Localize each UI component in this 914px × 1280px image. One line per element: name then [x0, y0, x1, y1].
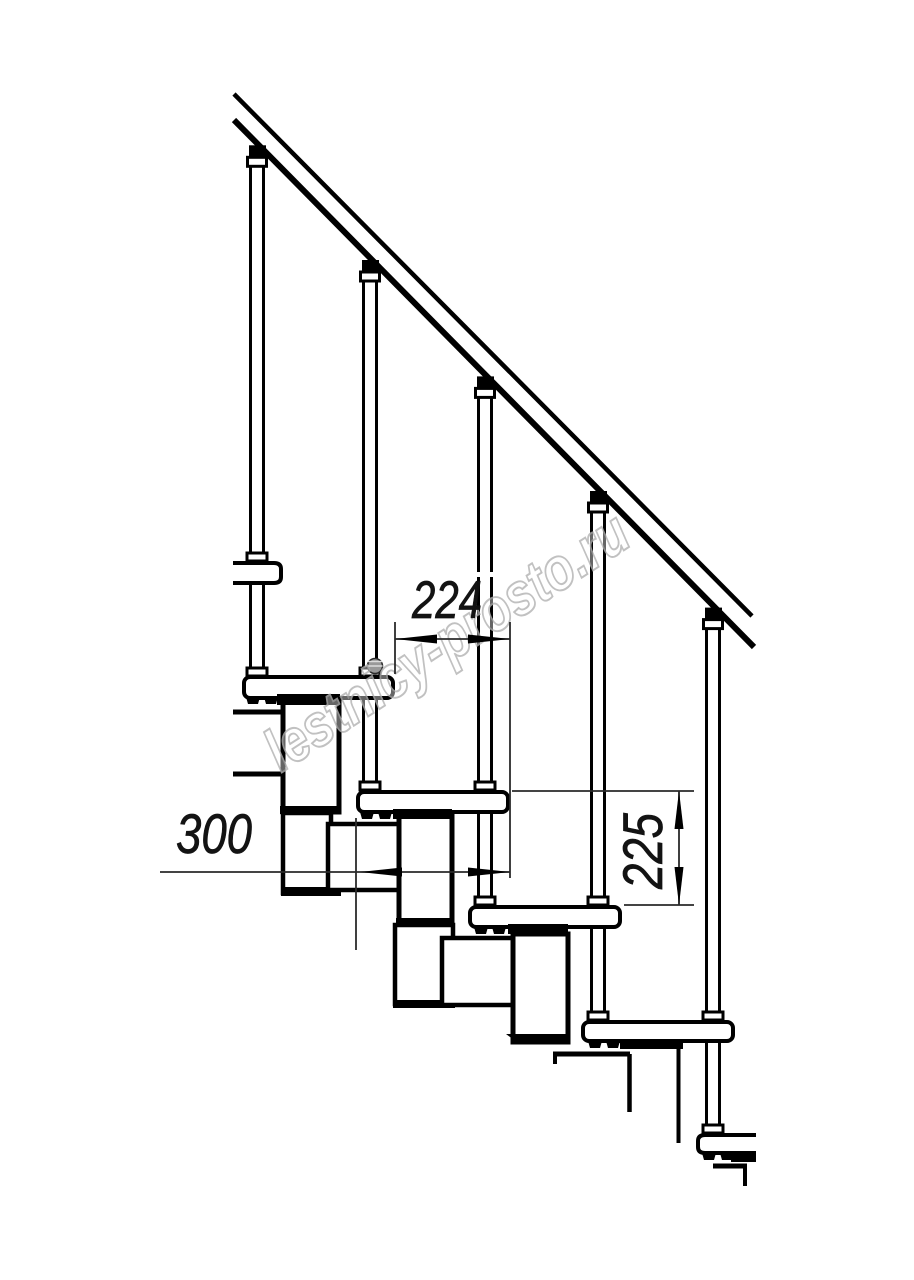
svg-text:300: 300	[176, 802, 252, 865]
svg-text:224: 224	[411, 571, 482, 630]
svg-text:225: 225	[611, 812, 674, 890]
